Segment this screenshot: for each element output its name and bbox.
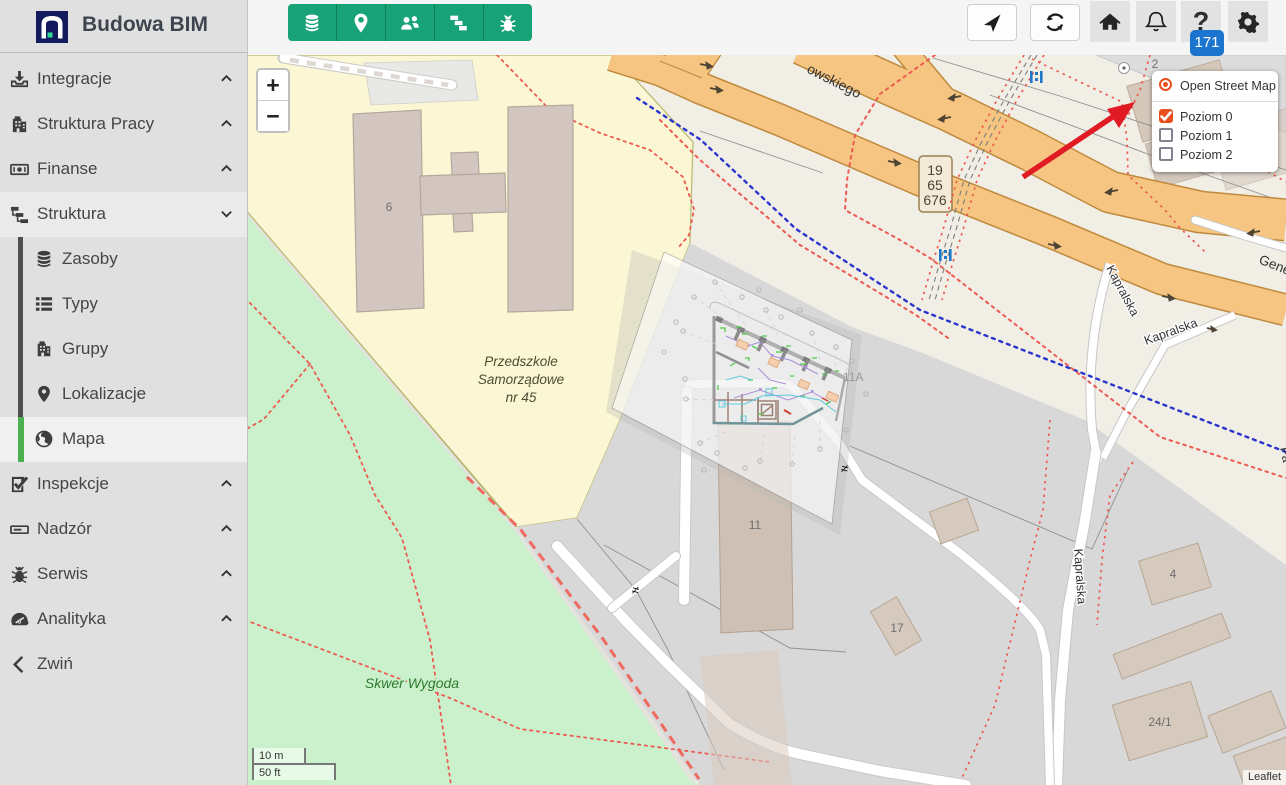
svg-text:6: 6 xyxy=(386,200,393,214)
svg-text:Samorządowe: Samorządowe xyxy=(478,372,564,387)
svg-text:Skwer Wygoda: Skwer Wygoda xyxy=(365,675,459,691)
svg-text:11A: 11A xyxy=(843,370,863,384)
svg-text:676: 676 xyxy=(923,192,947,208)
svg-text:Przedszkole: Przedszkole xyxy=(484,354,558,369)
svg-text:24/1: 24/1 xyxy=(1148,715,1172,729)
svg-text:4: 4 xyxy=(1170,567,1177,581)
svg-text:19: 19 xyxy=(927,162,943,178)
svg-text:11: 11 xyxy=(749,518,762,532)
svg-text:65: 65 xyxy=(927,177,943,193)
svg-text:17: 17 xyxy=(890,621,904,635)
svg-text:2: 2 xyxy=(1152,57,1159,71)
svg-text:nr 45: nr 45 xyxy=(506,390,537,405)
